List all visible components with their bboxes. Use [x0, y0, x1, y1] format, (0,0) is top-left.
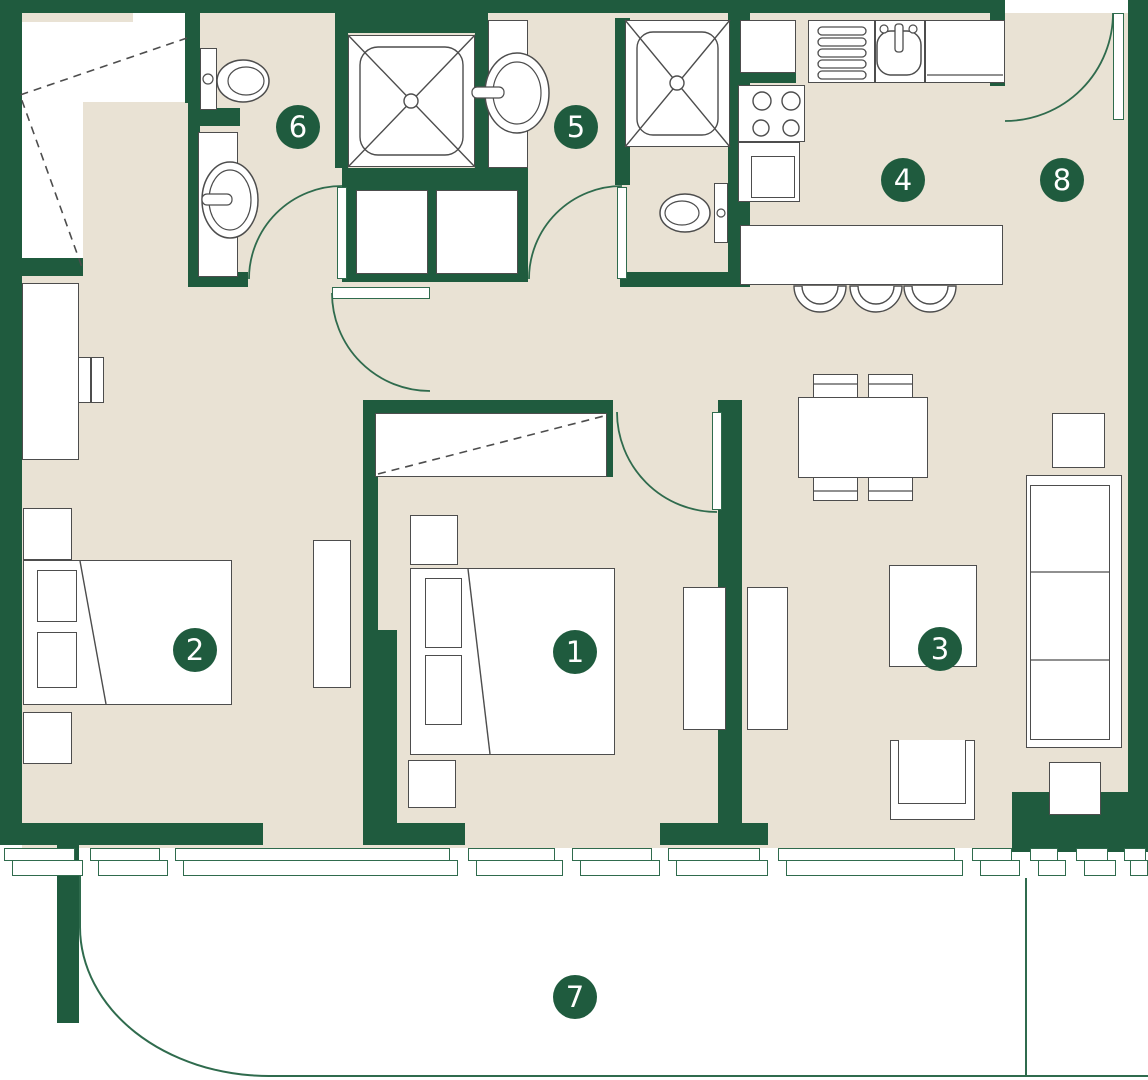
wall-shower6-left: [335, 13, 348, 168]
window-segment: [476, 860, 563, 876]
wall-right-outer: [1128, 0, 1148, 852]
wall-left-outer: [0, 0, 22, 845]
wall-bottom-b: [363, 823, 465, 845]
dining-chair-4: [868, 477, 913, 501]
wall-closet-bottom: [18, 258, 83, 276]
shower6-tray: [348, 35, 475, 167]
bedroom1-nightstand-top: [410, 515, 458, 565]
tv-cabinet: [747, 587, 788, 730]
bedroom2-pillow-b: [37, 632, 77, 688]
wall-bottom-a: [0, 823, 263, 845]
dining-chair-2: [868, 374, 913, 398]
wall-bottom-c: [660, 823, 768, 845]
window-segment: [1084, 860, 1116, 876]
bedroom1-nightstand-bottom: [408, 760, 456, 808]
window-segment: [12, 860, 83, 876]
wall-bedroom1-top: [363, 400, 613, 413]
closet-area-strip: [18, 100, 83, 258]
wall-shower6-right: [475, 13, 488, 168]
door-leaf-bedroom2: [332, 287, 430, 299]
bedroom1-pillow-a: [425, 578, 462, 648]
room-badge-7: 7: [553, 975, 597, 1019]
window-segment: [580, 860, 660, 876]
window-segment: [1130, 860, 1148, 876]
room-badge-4: 4: [881, 158, 925, 202]
balcony-divider: [1025, 878, 1027, 1075]
kitchen-dishrack-unit: [808, 20, 875, 83]
bedroom2-wardrobe-handle-a: [78, 357, 91, 403]
kitchen-island: [740, 225, 1003, 285]
closet-area: [18, 22, 187, 102]
kitchen-sink-unit: [875, 20, 925, 83]
armchair-seat: [898, 740, 966, 804]
window-segment: [786, 860, 963, 876]
window-segment: [98, 860, 168, 876]
window-segment: [676, 860, 768, 876]
toilet6-cistern: [200, 48, 217, 110]
wall-bedroom1-left-thick: [363, 630, 397, 845]
bedroom1-pillow-b: [425, 655, 462, 725]
dining-chair-3: [813, 477, 858, 501]
room-badge-5: 5: [554, 105, 598, 149]
bedroom2-nightstand-bottom: [23, 712, 72, 764]
bedroom2-nightstand-top: [23, 508, 72, 560]
balcony: [79, 876, 1148, 1077]
window-segment: [1038, 860, 1066, 876]
hall-niche-left: [356, 190, 428, 274]
dining-chair-1: [813, 374, 858, 398]
kitchen-cabinet-top: [740, 20, 796, 73]
room-badge-6: 6: [276, 105, 320, 149]
room-badge-1: 1: [553, 630, 597, 674]
door-leaf-bath5: [617, 187, 627, 279]
bedroom2-pillow-a: [37, 570, 77, 622]
kitchen-stove: [738, 85, 805, 142]
bedroom1-wardrobe: [683, 587, 726, 730]
toilet5-cistern: [714, 183, 728, 243]
wall-top-outer: [0, 0, 1005, 13]
shower5-tray: [625, 20, 730, 147]
sofa-side-table-bottom: [1049, 762, 1101, 815]
sink5-cabinet: [488, 20, 528, 168]
wall-closet-divider: [185, 13, 200, 103]
bedroom1-closet: [375, 413, 607, 477]
sofa-seats: [1030, 485, 1110, 740]
floor-plan: 1 2 3 4 5 6 7 8: [0, 0, 1148, 1080]
bedroom2-dresser: [313, 540, 351, 688]
wall-wc-bottom: [620, 272, 750, 287]
wall-top-shower: [335, 13, 480, 33]
room-badge-8: 8: [1040, 158, 1084, 202]
hall-niche-right: [436, 190, 518, 274]
window-segment: [183, 860, 458, 876]
wall-sink5-stub: [485, 167, 525, 187]
wall-kitchen-cabinet-stub: [740, 73, 796, 83]
kitchen-counter-right: [925, 20, 1005, 83]
door-leaf-bath6: [337, 187, 347, 279]
room-badge-3: 3: [918, 627, 962, 671]
room-badge-2: 2: [173, 628, 217, 672]
dining-table: [798, 397, 928, 478]
bedroom2-wardrobe-handle-b: [91, 357, 104, 403]
bedroom2-wardrobe: [22, 283, 79, 460]
door-leaf-entry: [1113, 13, 1124, 120]
window-segment: [980, 860, 1020, 876]
sofa-side-table-top: [1052, 413, 1105, 468]
door-leaf-bedroom1: [712, 412, 722, 510]
kitchen-cabinet-lower-inner: [751, 156, 795, 198]
wall-bath6-toilet-stub: [198, 108, 240, 126]
sink6-cabinet: [198, 132, 238, 277]
